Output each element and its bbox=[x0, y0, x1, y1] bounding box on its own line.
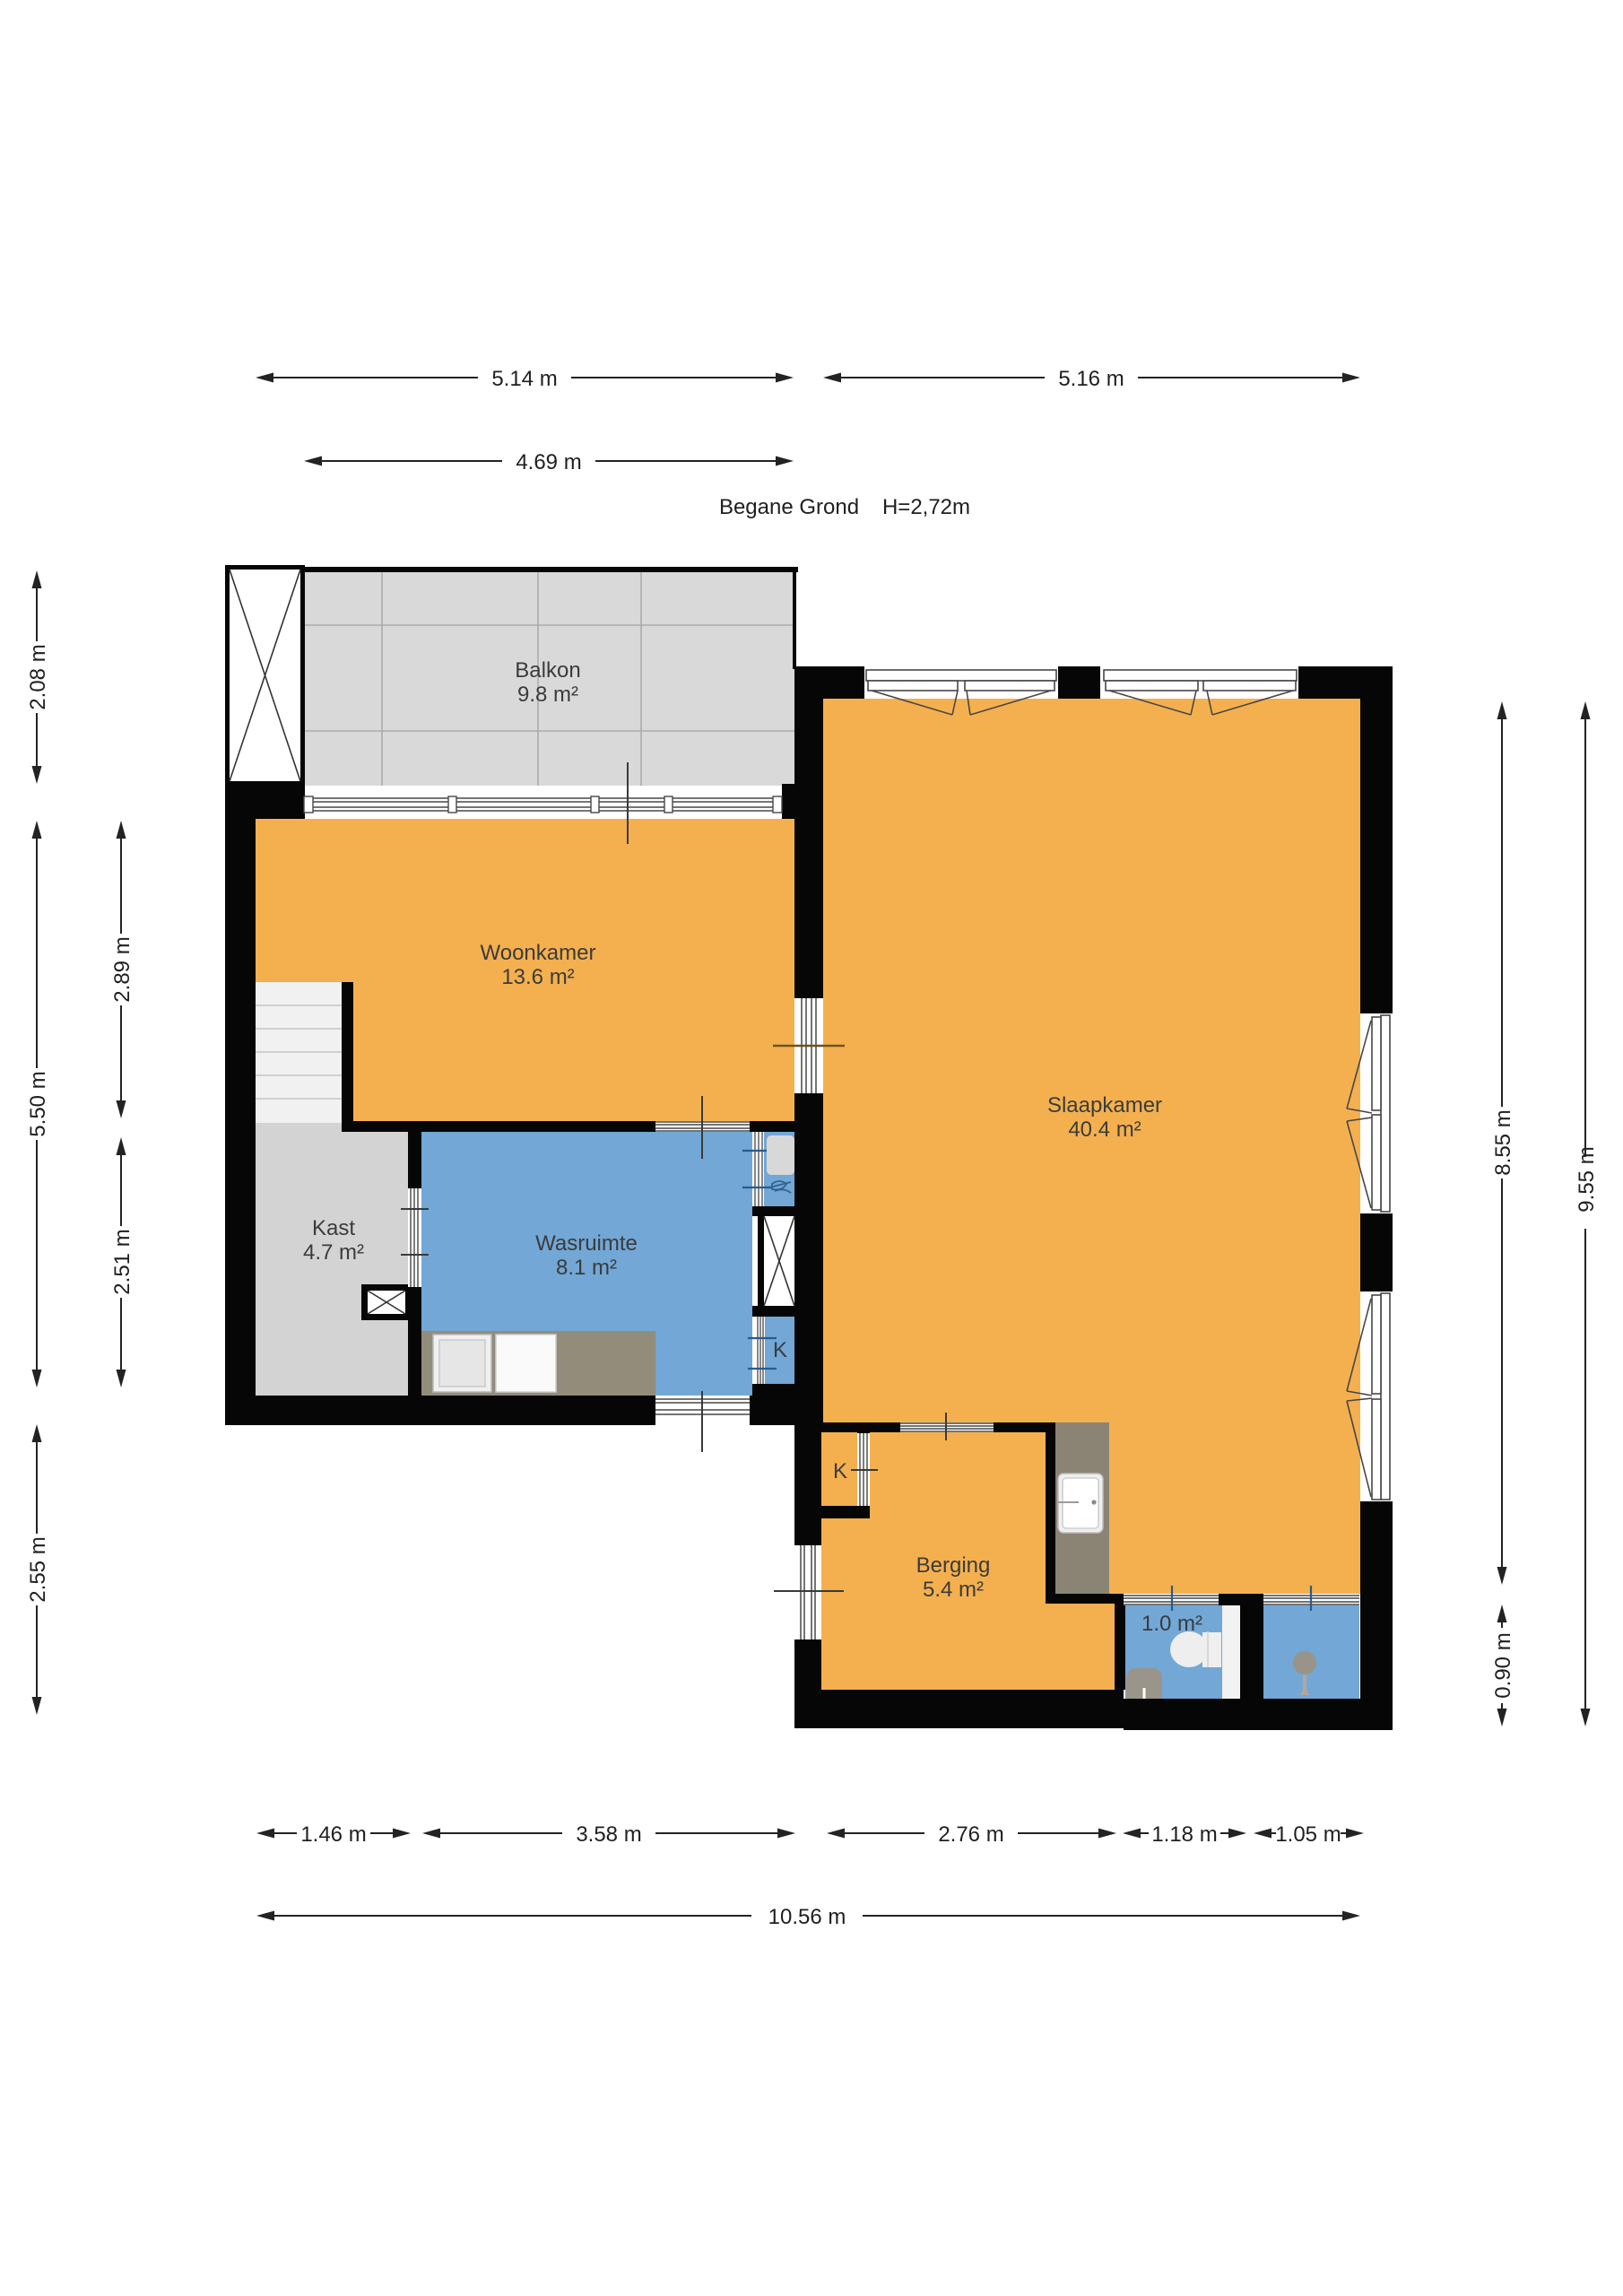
svg-text:2.08 m: 2.08 m bbox=[26, 644, 50, 709]
svg-text:Woonkamer: Woonkamer bbox=[481, 941, 596, 965]
svg-text:1.46 m: 1.46 m bbox=[300, 1822, 366, 1847]
svg-text:8.55 m: 8.55 m bbox=[1491, 1109, 1515, 1175]
svg-text:5.16 m: 5.16 m bbox=[1058, 367, 1124, 391]
svg-text:1.0 m²: 1.0 m² bbox=[1141, 1612, 1202, 1636]
svg-text:Slaapkamer: Slaapkamer bbox=[1047, 1093, 1162, 1118]
svg-text:1.05 m: 1.05 m bbox=[1275, 1822, 1341, 1847]
svg-text:K: K bbox=[833, 1459, 847, 1483]
svg-text:Kast: Kast bbox=[312, 1216, 355, 1240]
svg-text:2.76 m: 2.76 m bbox=[938, 1822, 1003, 1847]
svg-text:5.14 m: 5.14 m bbox=[491, 367, 557, 391]
svg-text:Wasruimte: Wasruimte bbox=[535, 1231, 638, 1256]
svg-text:2.55 m: 2.55 m bbox=[26, 1536, 50, 1602]
svg-text:0.90 m: 0.90 m bbox=[1491, 1632, 1515, 1698]
svg-text:40.4 m²: 40.4 m² bbox=[1068, 1118, 1141, 1142]
svg-text:Balkon: Balkon bbox=[515, 658, 580, 683]
svg-text:5.4 m²: 5.4 m² bbox=[923, 1578, 984, 1602]
svg-text:Begane Grond: Begane Grond bbox=[719, 495, 859, 519]
svg-text:3.58 m: 3.58 m bbox=[576, 1822, 641, 1847]
svg-text:8.1 m²: 8.1 m² bbox=[556, 1256, 617, 1280]
svg-text:9.55 m: 9.55 m bbox=[1575, 1146, 1599, 1212]
svg-text:4.7 m²: 4.7 m² bbox=[303, 1240, 364, 1265]
svg-text:K: K bbox=[773, 1338, 787, 1362]
svg-text:13.6 m²: 13.6 m² bbox=[501, 965, 574, 989]
svg-text:H=2,72m: H=2,72m bbox=[882, 495, 970, 519]
svg-text:Berging: Berging bbox=[916, 1553, 991, 1578]
svg-text:9.8 m²: 9.8 m² bbox=[517, 683, 578, 707]
svg-text:2.51 m: 2.51 m bbox=[110, 1229, 135, 1294]
svg-text:10.56 m: 10.56 m bbox=[768, 1905, 846, 1929]
svg-text:4.69 m: 4.69 m bbox=[516, 450, 581, 474]
svg-text:2.89 m: 2.89 m bbox=[110, 936, 135, 1002]
svg-text:1.18 m: 1.18 m bbox=[1151, 1822, 1217, 1847]
svg-text:5.50 m: 5.50 m bbox=[26, 1071, 50, 1136]
